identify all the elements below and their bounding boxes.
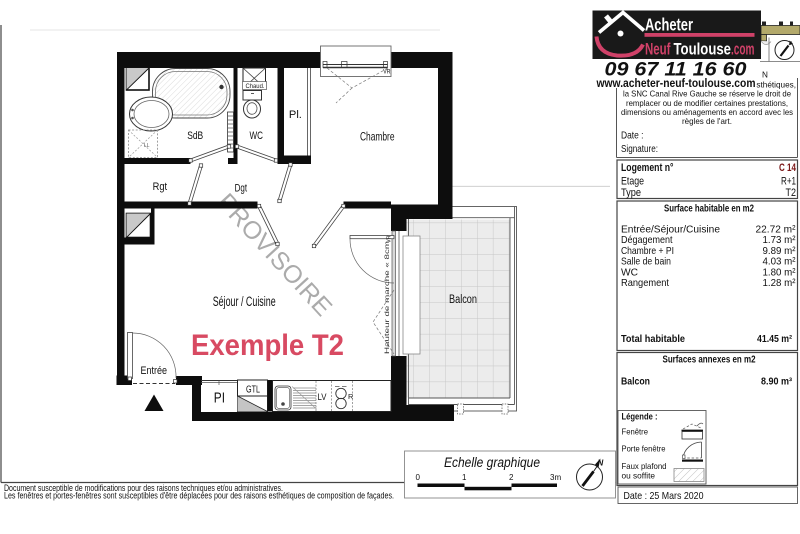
- svg-text:41.45 m²: 41.45 m²: [757, 333, 792, 345]
- svg-text:Légende :: Légende :: [622, 412, 658, 422]
- svg-text:LL: LL: [144, 143, 150, 149]
- svg-text:Balcon: Balcon: [621, 376, 650, 388]
- svg-text:Date :: Date :: [621, 131, 644, 142]
- svg-text:Porte fenêtre: Porte fenêtre: [622, 445, 666, 454]
- svg-text:Echelle graphique: Echelle graphique: [444, 455, 540, 470]
- svg-text:SdB: SdB: [187, 130, 203, 142]
- svg-text:Neuf: Neuf: [645, 41, 671, 59]
- svg-text:WC: WC: [250, 130, 264, 142]
- svg-text:0: 0: [416, 473, 421, 482]
- svg-text:Surfaces annexes en m2: Surfaces annexes en m2: [663, 355, 756, 366]
- svg-text:règles de l'art.: règles de l'art.: [682, 117, 732, 126]
- svg-text:Pl.: Pl.: [289, 109, 302, 121]
- svg-text:Etage: Etage: [621, 176, 644, 188]
- svg-text:22.72 m²: 22.72 m²: [756, 225, 797, 236]
- svg-text:Entrée/Séjour/Cuisine: Entrée/Séjour/Cuisine: [621, 225, 720, 236]
- svg-text:www.acheter-neuf-toulouse.com: www.acheter-neuf-toulouse.com: [596, 76, 756, 90]
- svg-text:Balcon: Balcon: [449, 294, 477, 306]
- svg-text:Surface habitable en m2: Surface habitable en m2: [664, 204, 754, 215]
- svg-text:N: N: [598, 459, 604, 468]
- svg-text:PI: PI: [214, 390, 225, 407]
- svg-text:Exemple T2: Exemple T2: [191, 329, 344, 362]
- svg-text:Séjour / Cuisine: Séjour / Cuisine: [213, 294, 276, 309]
- svg-text:.com: .com: [731, 41, 755, 59]
- svg-text:LV: LV: [318, 392, 327, 402]
- svg-text:1.73 m²: 1.73 m²: [763, 235, 797, 246]
- svg-text:sthétiques,: sthétiques,: [756, 81, 796, 90]
- svg-text:Toulouse: Toulouse: [674, 41, 732, 59]
- svg-text:remplacer ou de modifier certa: remplacer ou de modifier certaines prest…: [626, 99, 788, 108]
- svg-text:Les fenêtres et portes-fenêtre: Les fenêtres et portes-fenêtres sont sus…: [4, 491, 394, 501]
- svg-text:N: N: [762, 71, 768, 80]
- svg-text:WC: WC: [621, 267, 639, 278]
- svg-text:la SNC Canal Rive Gauche se ré: la SNC Canal Rive Gauche se réserve le d…: [623, 90, 791, 99]
- svg-text:R: R: [348, 392, 354, 401]
- svg-text:1.80 m²: 1.80 m²: [763, 267, 797, 278]
- svg-text:dimensions ou aménagements en: dimensions ou aménagements en accord ave…: [621, 108, 793, 117]
- svg-text:2: 2: [509, 473, 514, 482]
- svg-text:Dégagement: Dégagement: [621, 235, 673, 246]
- svg-text:C 14: C 14: [779, 162, 797, 174]
- svg-text:3m: 3m: [550, 473, 561, 482]
- svg-text:8.90 m³: 8.90 m³: [761, 376, 792, 388]
- svg-text:Chaud.: Chaud.: [246, 83, 265, 90]
- svg-text:ou soffite: ou soffite: [622, 472, 656, 481]
- svg-text:1.28 m²: 1.28 m²: [763, 278, 797, 289]
- svg-text:Entrée: Entrée: [141, 365, 168, 377]
- svg-text:Signature:: Signature:: [621, 144, 658, 155]
- svg-text:GTL: GTL: [246, 385, 260, 396]
- svg-text:Logement n°: Logement n°: [621, 162, 674, 174]
- svg-text:Chambre + PI: Chambre + PI: [621, 246, 674, 257]
- svg-text:Acheter: Acheter: [645, 15, 693, 35]
- svg-text:1: 1: [462, 473, 467, 482]
- svg-text:Date : 25 Mars 2020: Date : 25 Mars 2020: [624, 490, 704, 502]
- svg-text:T2: T2: [786, 187, 797, 199]
- svg-text:4.03 m²: 4.03 m²: [763, 257, 797, 268]
- svg-text:Type: Type: [621, 187, 641, 199]
- svg-text:Fenêtre: Fenêtre: [622, 428, 649, 437]
- svg-text:Total habitable: Total habitable: [621, 333, 685, 345]
- svg-text:Rangement: Rangement: [621, 278, 669, 289]
- svg-text:VR: VR: [383, 68, 390, 75]
- svg-text:Salle de bain: Salle de bain: [621, 257, 671, 268]
- svg-text:Dgt: Dgt: [235, 183, 248, 195]
- svg-text:R+1: R+1: [781, 176, 796, 188]
- svg-text:Hauteur de marche « 8cm: Hauteur de marche « 8cm: [384, 241, 391, 354]
- svg-text:9.89 m²: 9.89 m²: [763, 246, 797, 257]
- svg-text:Chambre: Chambre: [360, 130, 395, 144]
- svg-text:Faux plafond: Faux plafond: [622, 462, 667, 471]
- svg-text:Rgt: Rgt: [153, 181, 168, 193]
